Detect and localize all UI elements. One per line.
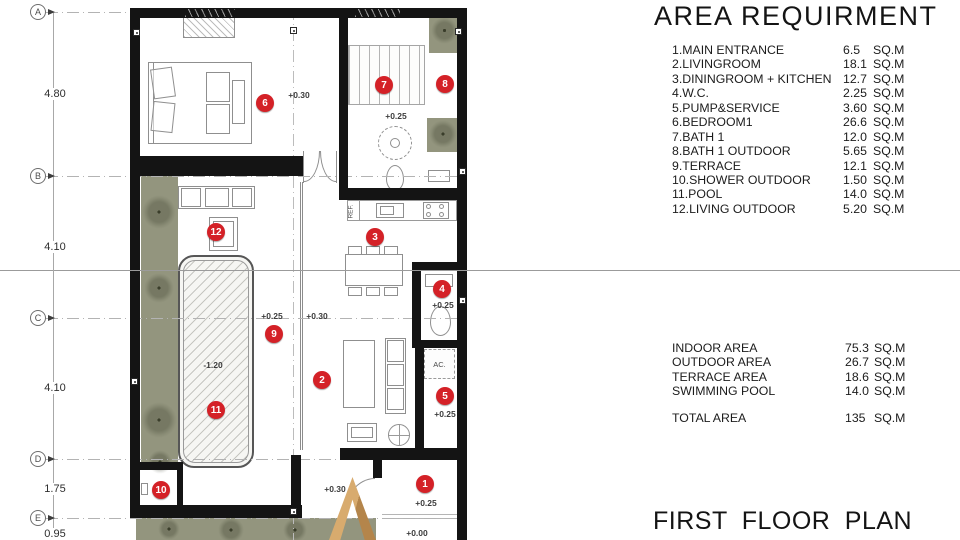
room-marker: 7 <box>375 76 393 94</box>
level-label: +0.25 <box>261 311 283 321</box>
level-label: +0.30 <box>324 484 346 494</box>
room-marker: 11 <box>207 401 225 419</box>
area-row: 1.MAIN ENTRANCE 6.5 SQ.M <box>672 43 922 57</box>
summary-row: TERRACE AREA 18.6 SQ.M <box>672 370 922 384</box>
summary-label: OUTDOOR AREA <box>672 355 771 369</box>
area-value: 12.0 <box>843 130 867 144</box>
area-row: 6.BEDROOM1 26.6 SQ.M <box>672 115 922 129</box>
area-row: 8.BATH 1 OUTDOOR 5.65 SQ.M <box>672 144 922 158</box>
area-label: 8.BATH 1 OUTDOOR <box>672 144 791 158</box>
page-title: AREA REQUIRMENT <box>654 1 938 32</box>
room-marker: 9 <box>265 325 283 343</box>
area-row: 2.LIVINGROOM 18.1 SQ.M <box>672 57 922 71</box>
grid-bubble: D <box>30 451 46 467</box>
room-marker: 1 <box>416 475 434 493</box>
plan-title: FIRST FLOOR PLAN <box>653 507 912 536</box>
level-label: +0.25 <box>415 498 437 508</box>
summary-row: SWIMMING POOL 14.0 SQ.M <box>672 384 922 398</box>
area-label: 12.LIVING OUTDOOR <box>672 202 796 216</box>
summary-value: 75.3 <box>845 341 869 355</box>
area-unit: SQ.M <box>873 144 904 158</box>
area-label: 2.LIVINGROOM <box>672 57 761 71</box>
area-value: 5.20 <box>843 202 867 216</box>
room-marker-number: 7 <box>381 80 387 91</box>
area-unit: SQ.M <box>873 115 904 129</box>
level-label: +0.25 <box>385 111 407 121</box>
area-label: 6.BEDROOM1 <box>672 115 753 129</box>
area-unit: SQ.M <box>873 43 904 57</box>
area-label: 7.BATH 1 <box>672 130 724 144</box>
level-label: +0.00 <box>406 528 428 538</box>
room-marker: 6 <box>256 94 274 112</box>
area-label: 10.SHOWER OUTDOOR <box>672 173 811 187</box>
room-marker: 12 <box>207 223 225 241</box>
summary-value: 18.6 <box>845 370 869 384</box>
dimension-arrow-icon <box>48 456 55 462</box>
area-unit: SQ.M <box>873 101 904 115</box>
area-value: 5.65 <box>843 144 867 158</box>
area-value: 26.6 <box>843 115 867 129</box>
area-row: 3.DININGROOM + KITCHEN 12.7 SQ.M <box>672 72 922 86</box>
area-value: 3.60 <box>843 101 867 115</box>
room-marker: 10 <box>152 481 170 499</box>
area-label: 1.MAIN ENTRANCE <box>672 43 784 57</box>
summary-unit: SQ.M <box>874 341 905 355</box>
area-value: 1.50 <box>843 173 867 187</box>
dimension-arrow-icon <box>48 173 55 179</box>
total-value: 135 <box>845 411 866 425</box>
level-label: +0.30 <box>306 311 328 321</box>
level-label: +0.25 <box>434 409 456 419</box>
area-row: 9.TERRACE 12.1 SQ.M <box>672 159 922 173</box>
area-row: 12.LIVING OUTDOOR 5.20 SQ.M <box>672 202 922 216</box>
area-label: 4.W.C. <box>672 86 709 100</box>
area-label: 5.PUMP&SERVICE <box>672 101 780 115</box>
area-value: 6.5 <box>843 43 860 57</box>
room-marker: 3 <box>366 228 384 246</box>
summary-unit: SQ.M <box>874 355 905 369</box>
area-unit: SQ.M <box>873 187 904 201</box>
area-value: 14.0 <box>843 187 867 201</box>
room-marker: 2 <box>313 371 331 389</box>
area-label: 11.POOL <box>672 187 722 201</box>
area-value: 12.1 <box>843 159 867 173</box>
area-unit: SQ.M <box>873 159 904 173</box>
total-label: TOTAL AREA <box>672 411 746 425</box>
area-unit: SQ.M <box>873 57 904 71</box>
area-row: 7.BATH 1 12.0 SQ.M <box>672 130 922 144</box>
room-marker: 5 <box>436 387 454 405</box>
area-list: 1.MAIN ENTRANCE 6.5 SQ.M 2.LIVINGROOM 18… <box>672 43 922 216</box>
dimension-arrow-icon <box>48 515 55 521</box>
dimension-arrow-icon <box>48 315 55 321</box>
room-marker-number: 6 <box>262 98 268 109</box>
room-marker-number: 2 <box>319 375 325 386</box>
dimension-arrow-icon <box>48 9 55 15</box>
grid-bubble: C <box>30 310 46 326</box>
room-marker-number: 4 <box>439 284 445 295</box>
dimension-label: 4.10 <box>42 241 67 253</box>
summary-row: INDOOR AREA 75.3 SQ.M <box>672 341 922 355</box>
room-marker-number: 10 <box>155 485 166 496</box>
area-row: 10.SHOWER OUTDOOR 1.50 SQ.M <box>672 173 922 187</box>
room-marker-number: 9 <box>271 329 277 340</box>
area-row: 4.W.C. 2.25 SQ.M <box>672 86 922 100</box>
area-unit: SQ.M <box>873 86 904 100</box>
level-label: -1.20 <box>203 360 222 370</box>
summary-label: TERRACE AREA <box>672 370 767 384</box>
total-unit: SQ.M <box>874 411 905 425</box>
area-unit: SQ.M <box>873 72 904 86</box>
total-row: TOTAL AREA 135 SQ.M <box>672 411 922 426</box>
grid-bubble: E <box>30 510 46 526</box>
room-marker-number: 5 <box>442 391 448 402</box>
area-label: 9.TERRACE <box>672 159 741 173</box>
floor-plan-sheet: REF. AC. 1 2 3 4 5 6 7 8 9 <box>0 0 960 540</box>
room-marker: 8 <box>436 75 454 93</box>
summary-label: SWIMMING POOL <box>672 384 775 398</box>
area-row: 5.PUMP&SERVICE 3.60 SQ.M <box>672 101 922 115</box>
area-unit: SQ.M <box>873 173 904 187</box>
grid-bubble: B <box>30 168 46 184</box>
level-label: +0.25 <box>432 300 454 310</box>
area-row: 11.POOL 14.0 SQ.M <box>672 187 922 201</box>
room-marker-number: 12 <box>210 227 221 238</box>
area-value: 12.7 <box>843 72 867 86</box>
dimension-label: 4.80 <box>42 88 67 100</box>
grid-bubble: A <box>30 4 46 20</box>
room-marker-number: 11 <box>211 405 222 416</box>
room-marker: 4 <box>433 280 451 298</box>
summary-unit: SQ.M <box>874 370 905 384</box>
summary-unit: SQ.M <box>874 384 905 398</box>
summary-row: OUTDOOR AREA 26.7 SQ.M <box>672 355 922 369</box>
room-marker-number: 8 <box>442 79 448 90</box>
dimension-label: 4.10 <box>42 382 67 394</box>
summary-value: 14.0 <box>845 384 869 398</box>
room-marker-number: 3 <box>372 232 378 243</box>
dimension-label: 1.75 <box>42 483 67 495</box>
area-unit: SQ.M <box>873 130 904 144</box>
room-marker-number: 1 <box>422 479 428 490</box>
summary-list: INDOOR AREA 75.3 SQ.M OUTDOOR AREA 26.7 … <box>672 341 922 398</box>
area-unit: SQ.M <box>873 202 904 216</box>
level-label: +0.30 <box>288 90 310 100</box>
dimension-label: 0.95 <box>42 528 67 540</box>
area-label: 3.DININGROOM + KITCHEN <box>672 72 832 86</box>
area-value: 18.1 <box>843 57 867 71</box>
area-value: 2.25 <box>843 86 867 100</box>
summary-label: INDOOR AREA <box>672 341 757 355</box>
summary-value: 26.7 <box>845 355 869 369</box>
